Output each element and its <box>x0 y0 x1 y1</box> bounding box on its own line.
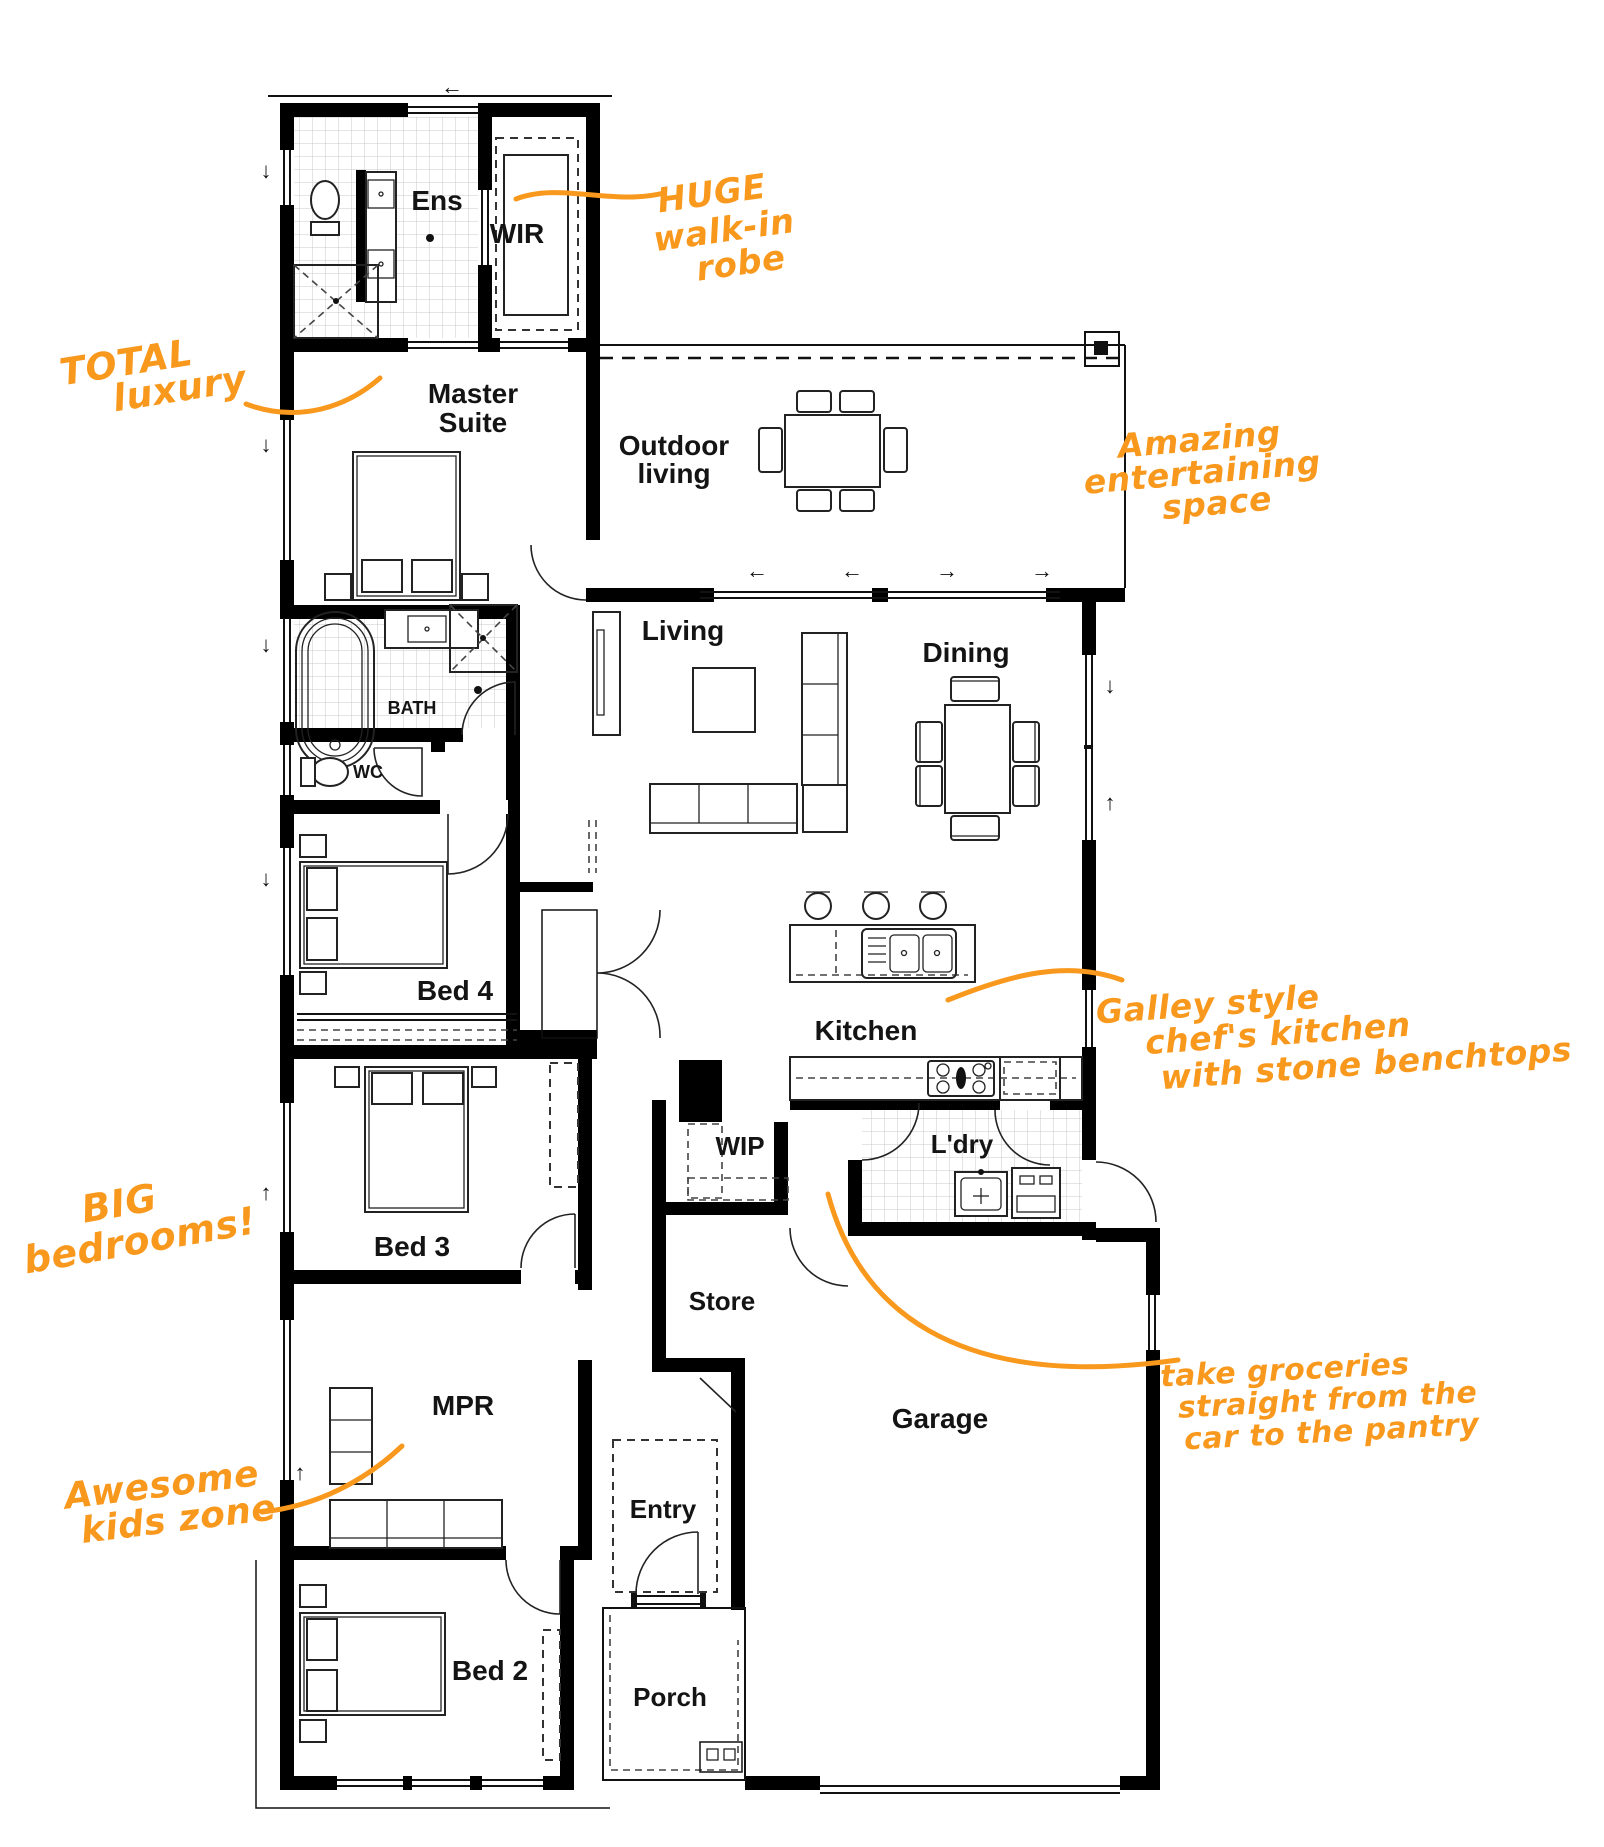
laundry-external-door-arc <box>1096 1162 1156 1222</box>
window <box>482 1779 543 1787</box>
annotation-huge-robe: HUGE walk-in robe <box>516 162 814 295</box>
window <box>283 618 291 722</box>
bed3-robe <box>550 1063 578 1187</box>
cavity-slider <box>481 190 489 265</box>
slider-direction-arrow: → <box>936 558 958 583</box>
dining-table-and-chairs <box>916 677 1039 840</box>
porch-post <box>700 1742 742 1772</box>
store-door-leaf <box>700 1378 736 1412</box>
window <box>283 1320 291 1480</box>
room-label-mpr: MPR <box>432 1390 494 1421</box>
room-label-bath: BATH <box>388 698 437 718</box>
window-direction-arrow: ↑ <box>261 1180 272 1205</box>
room-label-master-2: Suite <box>439 407 507 438</box>
roof-post <box>1085 332 1119 366</box>
living-coffee-table <box>693 668 755 732</box>
annotation-text: TOTAL luxury <box>57 323 251 428</box>
window <box>1148 1295 1156 1350</box>
annotation-text: BIG bedrooms! <box>13 1159 259 1283</box>
washing-machine <box>1012 1168 1060 1218</box>
kitchen-bench <box>790 1057 1082 1100</box>
room-label-outdoor-2: living <box>637 458 710 489</box>
kitchen-island <box>790 892 975 982</box>
room-label-kitchen: Kitchen <box>815 1015 918 1046</box>
window-direction-arrow: ↑ <box>1105 790 1116 815</box>
living-tv-unit <box>593 612 620 735</box>
bed4-bed <box>300 835 447 994</box>
window-direction-arrow: ↓ <box>261 632 272 657</box>
garage-internal-door-arc <box>790 1228 848 1286</box>
bed4-robe-sliders <box>297 1014 517 1040</box>
linen-nook <box>542 910 597 1038</box>
annotation-amazing-entertaining: Amazing entertaining space <box>1079 408 1337 533</box>
window-direction-arrow: ↓ <box>261 866 272 891</box>
linen-double-door-arcs <box>597 910 660 1038</box>
master-door-arc <box>531 545 586 600</box>
cavity-slider <box>408 341 478 349</box>
door-direction-arrow: ← <box>441 74 463 99</box>
room-label-outdoor-1: Outdoor <box>619 430 730 461</box>
master-bed <box>325 452 488 600</box>
annotation-text: HUGE walk-in robe <box>645 162 814 295</box>
room-label-ens: Ens <box>411 185 462 216</box>
room-label-store: Store <box>689 1286 755 1316</box>
window-direction-arrow: ↓ <box>261 158 272 183</box>
ensuite-floor-waste <box>426 234 434 242</box>
window <box>412 1779 470 1787</box>
bath-floor-waste <box>474 686 482 694</box>
window <box>283 420 291 560</box>
annotation-leader-line <box>246 378 380 412</box>
bed2-bed <box>300 1585 445 1742</box>
slider-direction-arrow: → <box>1031 558 1053 583</box>
window <box>337 1779 403 1787</box>
room-label-bed3: Bed 3 <box>374 1231 450 1262</box>
bed4-door-arc <box>448 814 508 874</box>
ensuite-toilet <box>311 181 339 235</box>
bed2-robe <box>543 1630 560 1760</box>
annotation-text: take groceries straight from the car to … <box>1159 1343 1490 1459</box>
room-label-ldry: L'dry <box>931 1129 994 1159</box>
cavity-slider <box>408 106 478 114</box>
annotation-big-bedrooms: BIG bedrooms! <box>13 1159 259 1283</box>
room-label-master-1: Master <box>428 378 518 409</box>
floor-plan-page: ← ↓ ↓ ↓ ↓ ↑ ↑ ↓ ↑ ← ← → → Ens WIR Master… <box>0 0 1604 1847</box>
room-label-porch: Porch <box>633 1682 707 1712</box>
front-door-sill <box>631 1593 706 1607</box>
window <box>283 848 291 975</box>
room-label-garage: Garage <box>892 1403 989 1434</box>
floor-plan-drawing: ← ↓ ↓ ↓ ↓ ↑ ↑ ↓ ↑ ← ← → → Ens WIR Master… <box>0 0 1604 1847</box>
window <box>1084 655 1093 840</box>
room-label-wc: WC <box>353 762 383 782</box>
room-label-wir: WIR <box>490 218 544 249</box>
bed2-door-arc <box>506 1560 560 1614</box>
slider-direction-arrow: ← <box>841 558 863 583</box>
annotation-text: Amazing entertaining space <box>1079 408 1337 533</box>
cavity-slider <box>500 341 568 349</box>
bath-vanity <box>385 610 478 648</box>
laundry-tub <box>955 1169 1007 1216</box>
room-label-wip: WIP <box>715 1131 764 1161</box>
window-direction-arrow: ↓ <box>261 432 272 457</box>
room-label-living: Living <box>642 615 724 646</box>
annotations-layer: HUGE walk-in robe TOTAL luxury Amazing e… <box>13 162 1573 1554</box>
slider-direction-arrow: ← <box>746 558 768 583</box>
front-door-arc <box>636 1532 698 1594</box>
window-direction-arrow: ↑ <box>295 1460 306 1485</box>
window <box>283 1103 291 1232</box>
room-label-bed4: Bed 4 <box>417 975 494 1006</box>
garage-door-panel <box>820 1786 1120 1793</box>
outdoor-table-and-chairs <box>759 391 907 511</box>
room-label-dining: Dining <box>922 637 1009 668</box>
ensuite-vanity <box>366 172 396 302</box>
bed3-bed <box>335 1067 496 1212</box>
bed3-door-arc <box>521 1214 575 1268</box>
room-label-entry: Entry <box>630 1494 697 1524</box>
annotation-text: Galley style chef's kitchen with stone b… <box>1095 960 1574 1102</box>
annotation-text: Awesome kids zone <box>59 1452 278 1554</box>
window <box>283 745 291 795</box>
room-label-bed2: Bed 2 <box>452 1655 528 1686</box>
window <box>1085 990 1093 1047</box>
window <box>283 150 291 205</box>
window-direction-arrow: ↓ <box>1105 673 1116 698</box>
wc-toilet <box>301 758 348 786</box>
